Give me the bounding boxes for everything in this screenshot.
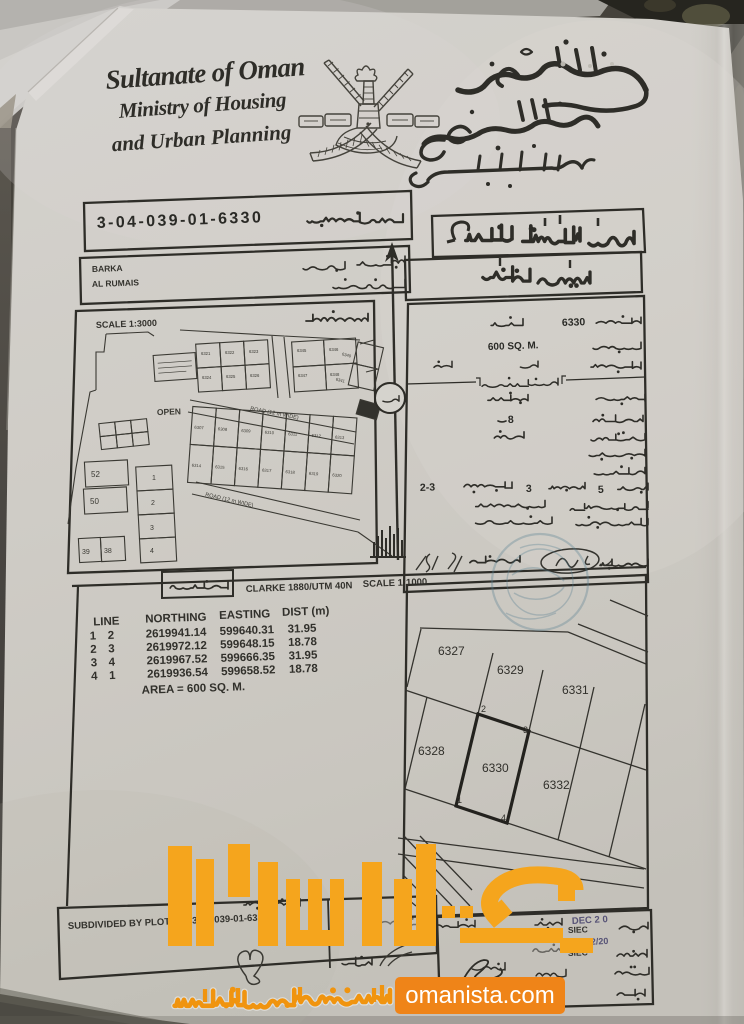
svg-text:599640.31: 599640.31 [219,624,274,638]
svg-text:6322: 6322 [225,350,235,355]
svg-text:4: 4 [108,657,115,669]
svg-text:6315: 6315 [215,464,225,470]
svg-text:BARKA: BARKA [92,263,123,274]
svg-text:AL RUMAIS: AL RUMAIS [92,277,140,289]
svg-text:4: 4 [91,671,98,683]
svg-text:2619967.52: 2619967.52 [146,653,207,667]
svg-text:6324: 6324 [202,375,212,380]
svg-text:NORTHING: NORTHING [145,612,207,626]
svg-text:31.95: 31.95 [287,623,317,636]
svg-text:1: 1 [457,795,462,805]
svg-text:6329: 6329 [497,663,524,677]
svg-text:6320: 6320 [332,472,342,478]
svg-text:6326: 6326 [250,373,260,378]
svg-text:6309: 6309 [241,428,251,434]
svg-text:1: 1 [90,630,97,642]
svg-text:4: 4 [501,813,506,823]
svg-text:1: 1 [152,475,156,482]
svg-text:6313: 6313 [335,435,345,441]
svg-text:52: 52 [91,470,100,479]
svg-text:6311: 6311 [288,431,298,437]
svg-text:LINE: LINE [93,616,120,629]
svg-text:2619941.14: 2619941.14 [146,626,208,640]
svg-text:6347: 6347 [298,373,308,378]
svg-text:DIST (m): DIST (m) [282,605,330,619]
svg-text:6327: 6327 [438,644,465,658]
svg-text:6314: 6314 [192,463,202,469]
svg-text:SCALE 1:3000: SCALE 1:3000 [96,318,157,330]
svg-text:599648.15: 599648.15 [220,638,275,652]
svg-text:6319: 6319 [309,471,319,477]
svg-text:2619972.12: 2619972.12 [146,640,207,654]
svg-text:3: 3 [108,643,115,655]
svg-text:6330: 6330 [482,761,509,775]
svg-text:599658.52: 599658.52 [221,664,276,678]
svg-text:599666.35: 599666.35 [220,651,275,665]
svg-text:3: 3 [91,657,98,669]
svg-text:6330: 6330 [562,316,586,329]
svg-text:18.78: 18.78 [289,663,319,676]
svg-text:6307: 6307 [194,425,204,431]
svg-text:6331: 6331 [562,683,589,697]
svg-text:OPEN: OPEN [157,406,181,417]
svg-text:6332: 6332 [543,778,570,792]
svg-text:3: 3 [526,483,532,495]
svg-text:2: 2 [90,644,97,656]
svg-text:SCALE 1:1000: SCALE 1:1000 [363,577,428,590]
svg-text:2: 2 [481,704,486,714]
svg-text:38: 38 [104,548,112,555]
svg-text:6310: 6310 [265,430,275,436]
svg-text:31.95: 31.95 [288,649,318,662]
svg-text:6345: 6345 [297,348,307,353]
svg-text:EASTING: EASTING [219,608,271,622]
svg-text:6308: 6308 [218,426,228,432]
svg-text:1: 1 [109,670,116,682]
svg-text:4: 4 [150,548,154,555]
svg-text:6318: 6318 [285,469,295,475]
svg-text:6316: 6316 [238,466,248,472]
svg-text:6312: 6312 [311,433,321,439]
svg-text:2: 2 [108,630,115,642]
svg-text:50: 50 [90,497,99,506]
svg-text:6321: 6321 [201,351,211,356]
svg-text:6346: 6346 [329,347,339,352]
svg-text:8: 8 [508,414,514,426]
svg-text:3: 3 [150,525,154,532]
svg-text:39: 39 [82,549,90,556]
svg-text:omanista.com: omanista.com [405,982,554,1009]
svg-text:6325: 6325 [226,374,236,379]
svg-text:600 SQ. M.: 600 SQ. M. [488,340,539,353]
svg-text:18.78: 18.78 [288,636,318,649]
svg-text:6323: 6323 [249,349,259,354]
svg-text:2619936.54: 2619936.54 [147,667,209,681]
svg-text:2: 2 [151,500,155,507]
svg-text:5: 5 [598,484,604,496]
svg-text:2-3: 2-3 [420,481,436,494]
svg-text:6317: 6317 [262,468,272,474]
svg-text:DEC 2 0: DEC 2 0 [572,914,608,927]
svg-text:6328: 6328 [418,744,445,758]
svg-text:3: 3 [523,725,528,735]
